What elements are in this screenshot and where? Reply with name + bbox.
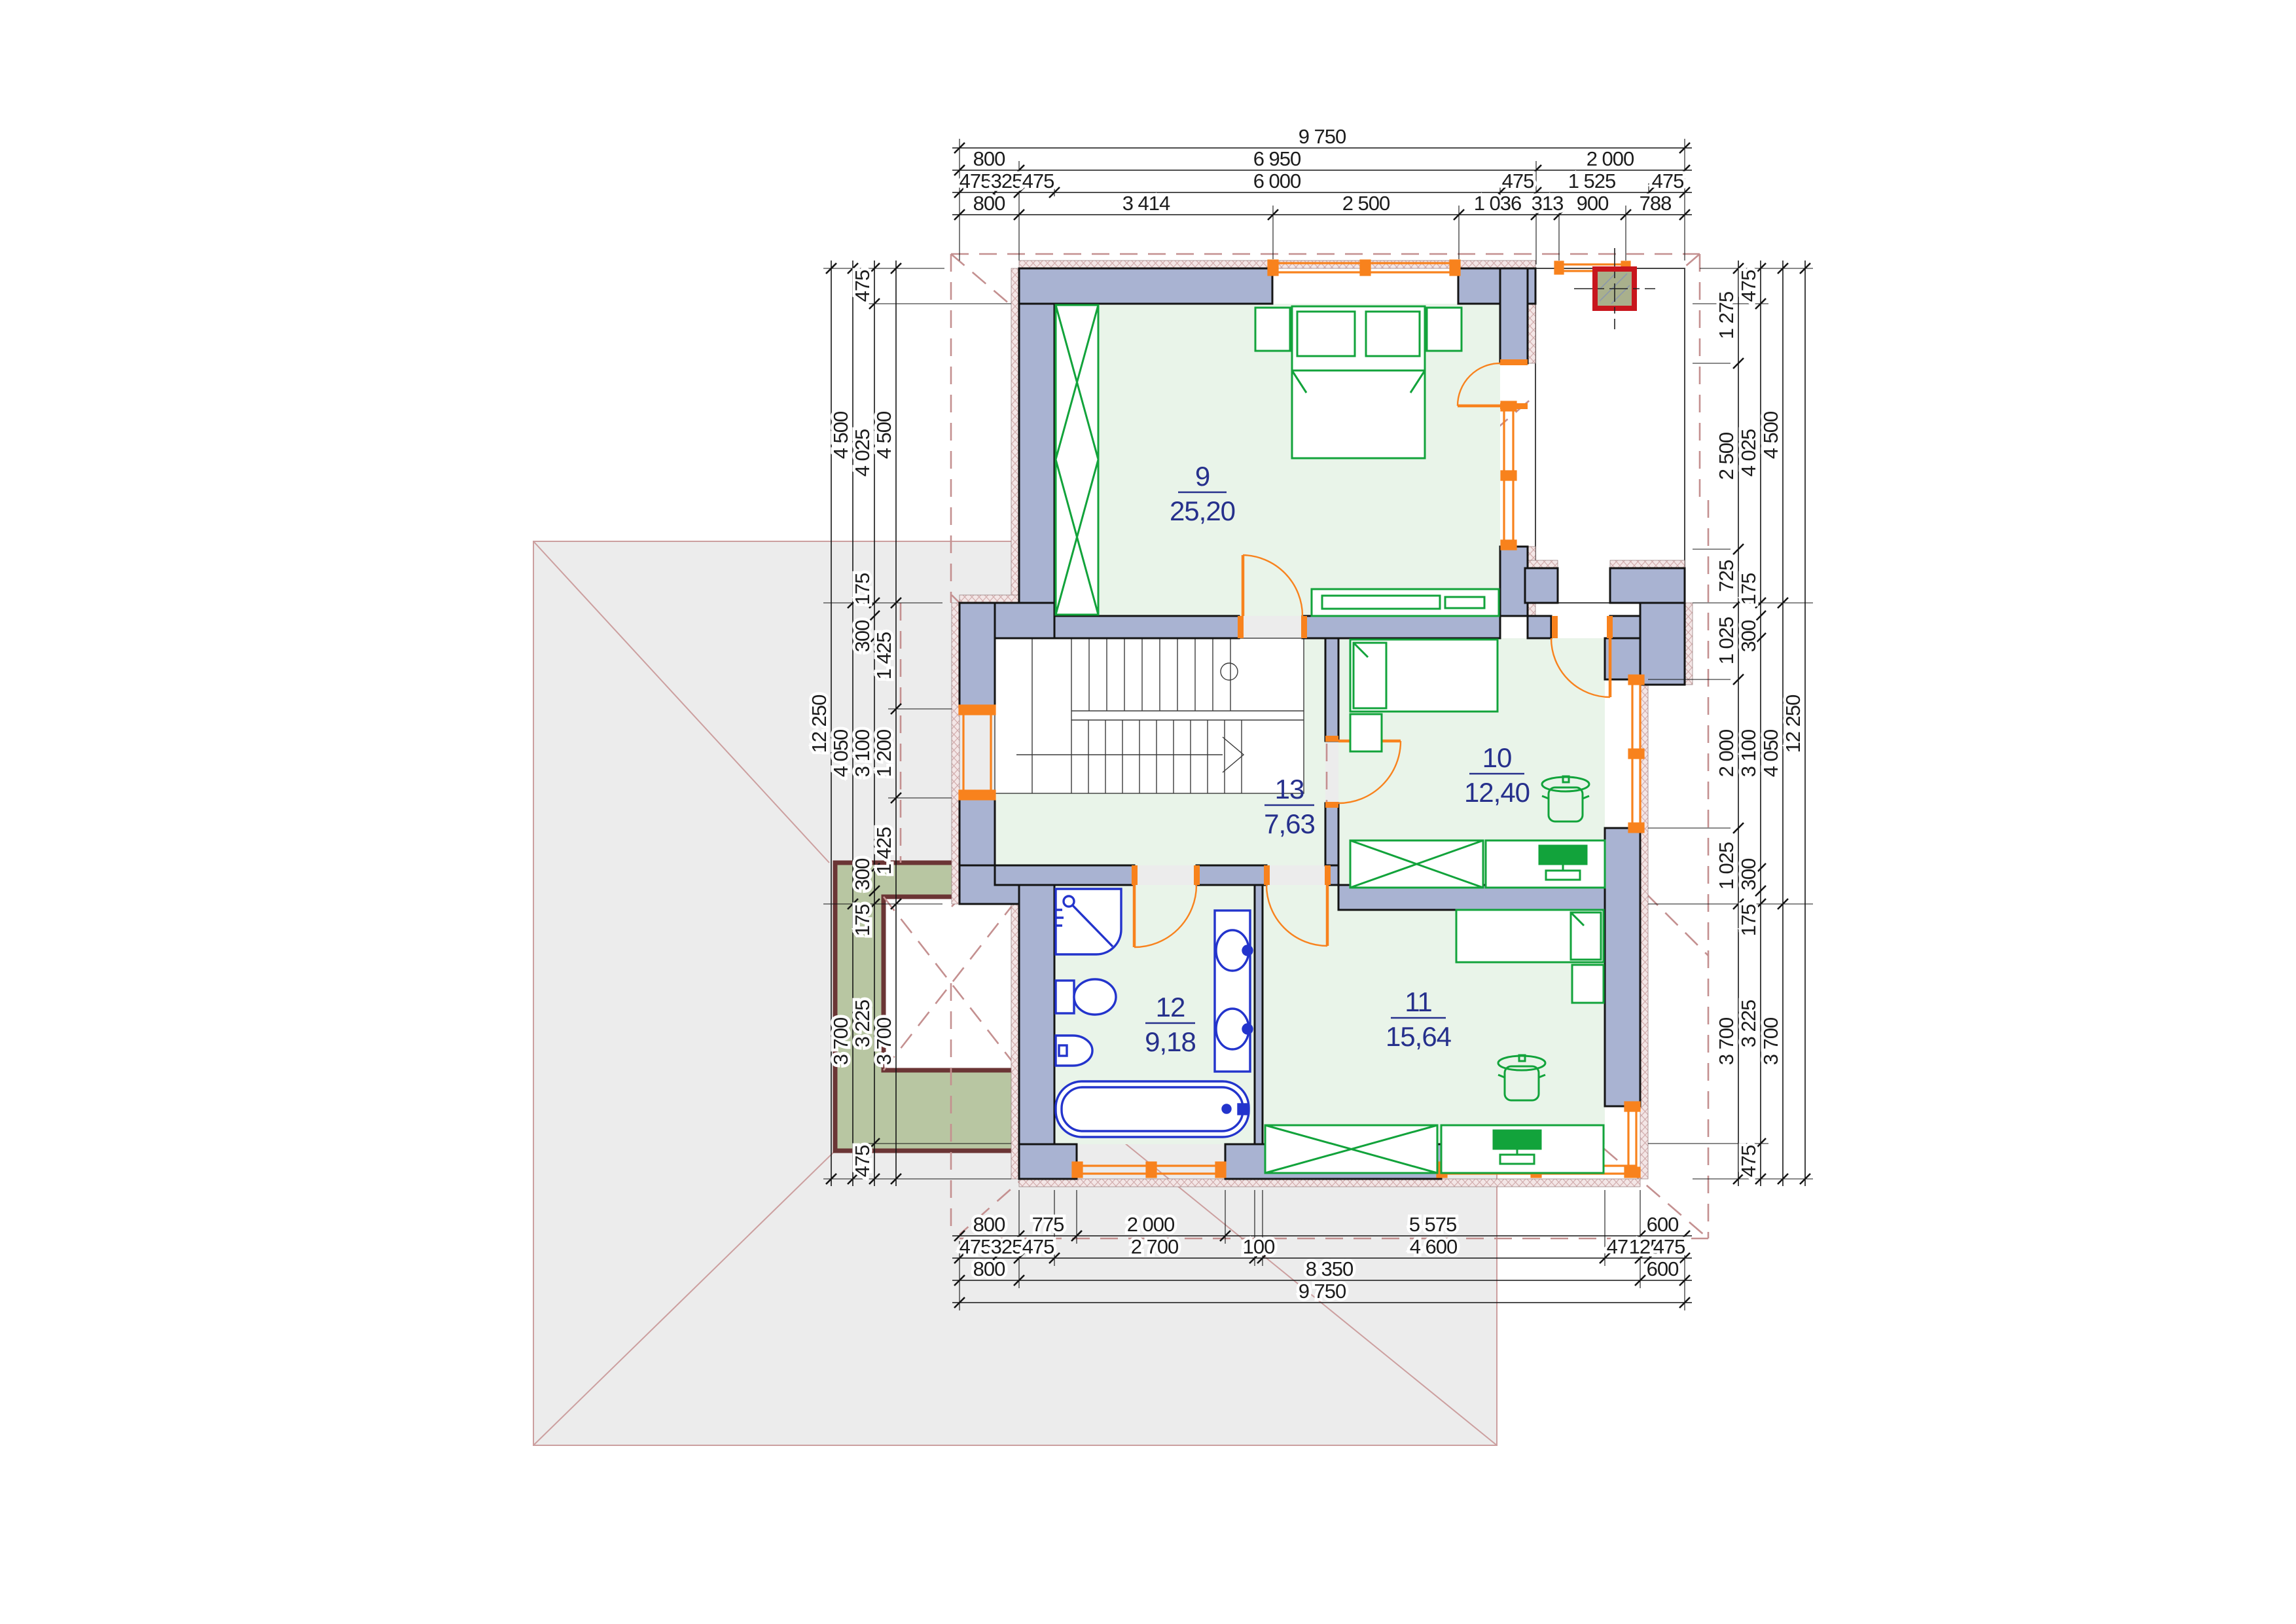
dim-label: 900: [1577, 192, 1609, 215]
nightstand: [1427, 308, 1462, 351]
dim-label: 3 100: [851, 729, 874, 777]
dim-label: 475: [1022, 170, 1054, 192]
dim-label: 788: [1640, 192, 1672, 215]
dim-label: 175: [1737, 573, 1760, 605]
svg-text:10: 10: [1482, 742, 1512, 773]
dim-label: 3 100: [1737, 729, 1760, 777]
staircase: [995, 638, 1304, 793]
dim-label: 475: [851, 1146, 874, 1178]
dim-label: 4 500: [829, 411, 852, 459]
dim-label: 475: [1737, 1146, 1760, 1178]
dim-label: 9 750: [1299, 1280, 1346, 1303]
dim-label: 475: [1652, 170, 1684, 192]
dim-label: 600: [1647, 1257, 1679, 1280]
wardrobe-room11: [1265, 1125, 1437, 1173]
dim-label: 3 700: [1759, 1017, 1782, 1065]
wardrobe-room9: [1056, 305, 1098, 615]
shower: [1056, 889, 1121, 954]
dim-label: 4 050: [1759, 729, 1782, 777]
dim-label: 2 000: [1127, 1213, 1175, 1236]
svg-text:15,64: 15,64: [1386, 1021, 1452, 1052]
dim-label: 9 750: [1299, 125, 1346, 148]
dim-label: 3 225: [1737, 1000, 1760, 1048]
dim-label: 175: [851, 573, 874, 605]
dim-label: 300: [1737, 858, 1760, 890]
dim-label: 3 700: [872, 1017, 895, 1065]
dim-label: 2 000: [1715, 729, 1738, 777]
dim-label: 1 036: [1474, 192, 1522, 215]
window-room9-east: [1501, 402, 1516, 549]
dim-label: 4 500: [1759, 411, 1782, 459]
dim-label: 800: [973, 192, 1005, 215]
dim-label: 300: [851, 858, 874, 890]
svg-text:9,18: 9,18: [1145, 1026, 1196, 1057]
svg-text:7,63: 7,63: [1264, 808, 1315, 839]
dim-label: 4 025: [851, 429, 874, 477]
bed-room11: [1456, 910, 1604, 962]
floor-plan-drawing: 9 750 800 6 950 2 000 475 325 475 6 000 …: [0, 0, 2296, 1624]
dim-label: 5 575: [1409, 1213, 1457, 1236]
dresser-room9: [1312, 589, 1499, 616]
dim-label: 1 275: [1715, 292, 1738, 340]
dim-label: 325: [991, 170, 1023, 192]
dim-label: 475: [960, 1235, 992, 1258]
dim-label: 1 525: [1568, 170, 1616, 192]
svg-text:13: 13: [1275, 774, 1304, 804]
bidet: [1056, 1036, 1092, 1066]
nightstand: [1255, 308, 1290, 351]
dim-label: 600: [1647, 1213, 1679, 1236]
dim-label: 475: [851, 270, 874, 302]
dim-label: 725: [1715, 560, 1738, 592]
dim-label: 800: [973, 1213, 1005, 1236]
dim-label: 175: [1737, 905, 1760, 937]
svg-text:12: 12: [1156, 992, 1185, 1022]
dim-label: 2 500: [1342, 192, 1390, 215]
dim-label: 12 250: [1782, 695, 1804, 753]
dim-label: 2 700: [1131, 1235, 1179, 1258]
dim-label: 475: [1502, 170, 1534, 192]
dim-label: 313: [1532, 192, 1564, 215]
dim-label: 6 000: [1253, 170, 1301, 192]
bed-room9: [1292, 306, 1425, 458]
toilet: [1056, 979, 1116, 1015]
dim-label: 3 700: [829, 1017, 852, 1065]
dim-label: 475: [1022, 1235, 1054, 1258]
balcony-floor: [1535, 268, 1685, 603]
dim-label: 300: [1737, 620, 1760, 652]
dim-label: 1 425: [872, 827, 895, 875]
dim-label: 775: [1032, 1213, 1064, 1236]
dim-label: 325: [991, 1235, 1023, 1258]
dim-label: 2 000: [1587, 147, 1634, 170]
dim-label: 800: [973, 1257, 1005, 1280]
desk-room10: [1486, 840, 1605, 888]
dim-label: 3 225: [851, 1000, 874, 1048]
bed-room10: [1350, 640, 1498, 712]
dim-label: 175: [851, 905, 874, 937]
dim-label: 3 414: [1122, 192, 1170, 215]
double-vanity: [1215, 911, 1252, 1072]
nightstand: [1572, 965, 1604, 1003]
dim-label: 4 025: [1737, 429, 1760, 477]
dim-label: 4 500: [872, 411, 895, 459]
dim-label: 1 025: [1715, 842, 1738, 890]
svg-text:9: 9: [1195, 461, 1210, 492]
dim-label: 12 250: [808, 695, 831, 753]
nightstand: [1350, 714, 1382, 751]
dim-label: 300: [851, 620, 874, 652]
dim-label: 4 050: [829, 729, 852, 777]
svg-text:12,40: 12,40: [1464, 777, 1530, 808]
dim-label: 6 950: [1253, 147, 1301, 170]
dim-label: 8 350: [1306, 1257, 1354, 1280]
dim-label: 2 500: [1715, 432, 1738, 480]
dim-label: 475: [1737, 270, 1760, 302]
desk-room11: [1441, 1125, 1604, 1173]
dim-label: 800: [973, 147, 1005, 170]
floor-plan-page: 9 750 800 6 950 2 000 475 325 475 6 000 …: [0, 0, 2296, 1624]
dim-label: 1 025: [1715, 617, 1738, 665]
dim-label: 3 700: [1715, 1017, 1738, 1065]
bathtub: [1056, 1081, 1249, 1137]
dim-label: 100: [1243, 1235, 1275, 1258]
svg-text:11: 11: [1405, 986, 1432, 1017]
svg-text:25,20: 25,20: [1170, 496, 1235, 526]
dim-label: 475: [1653, 1235, 1685, 1258]
dim-label: 1 200: [872, 729, 895, 777]
dim-label: 1 425: [872, 632, 895, 680]
dim-label: 4 600: [1410, 1235, 1458, 1258]
wardrobe-room10: [1350, 840, 1483, 888]
dim-label: 475: [960, 170, 992, 192]
